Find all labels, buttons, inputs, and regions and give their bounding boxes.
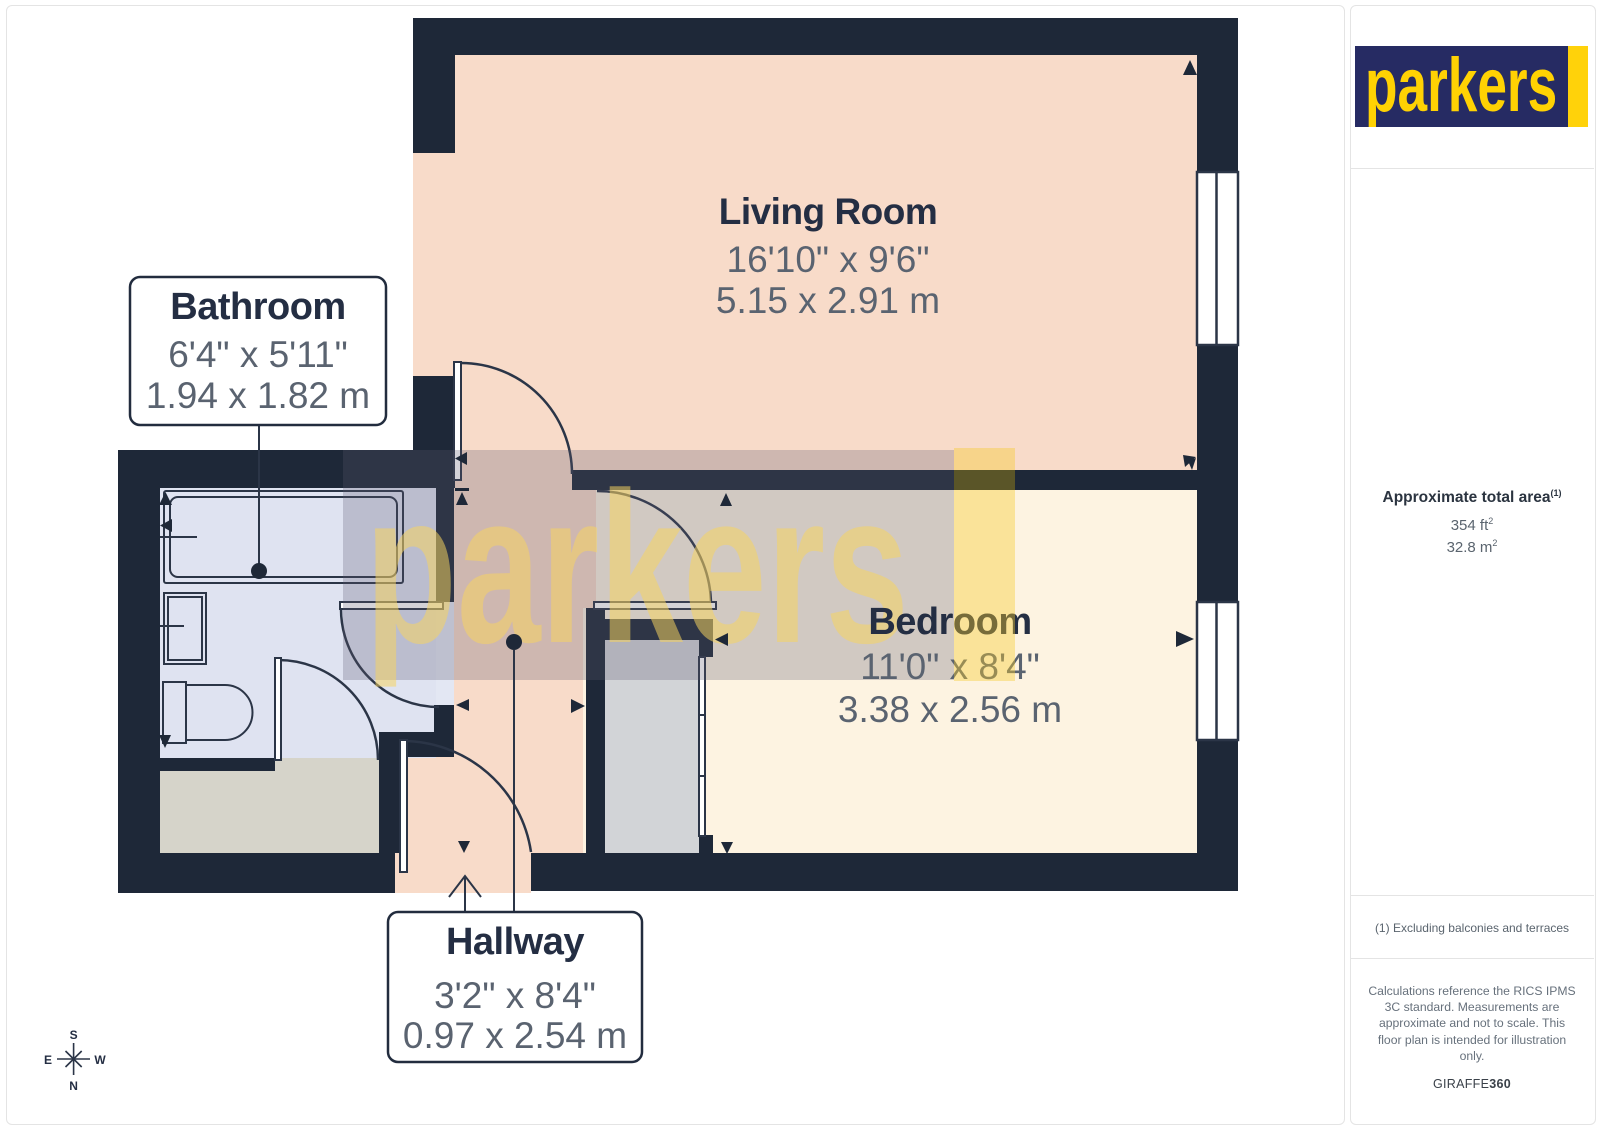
svg-text:Hallway: Hallway bbox=[446, 921, 584, 963]
svg-text:6'4" x 5'11": 6'4" x 5'11" bbox=[168, 334, 348, 375]
svg-text:parkers: parkers bbox=[365, 449, 909, 689]
svg-text:W: W bbox=[94, 1053, 106, 1067]
svg-text:Bathroom: Bathroom bbox=[170, 286, 345, 328]
svg-text:3'2" x 8'4": 3'2" x 8'4" bbox=[434, 975, 596, 1016]
svg-text:5.15 x 2.91 m: 5.15 x 2.91 m bbox=[716, 280, 940, 321]
svg-text:E: E bbox=[44, 1053, 52, 1067]
svg-text:3.38 x 2.56 m: 3.38 x 2.56 m bbox=[838, 689, 1062, 730]
svg-text:16'10" x 9'6": 16'10" x 9'6" bbox=[727, 239, 930, 280]
svg-text:S: S bbox=[70, 1028, 78, 1042]
svg-text:0.97 x 2.54 m: 0.97 x 2.54 m bbox=[403, 1015, 627, 1056]
svg-text:Living Room: Living Room bbox=[719, 191, 938, 232]
svg-text:N: N bbox=[69, 1079, 78, 1093]
svg-text:1.94 x 1.82 m: 1.94 x 1.82 m bbox=[146, 375, 370, 416]
svg-text:parkers: parkers bbox=[1365, 46, 1557, 127]
